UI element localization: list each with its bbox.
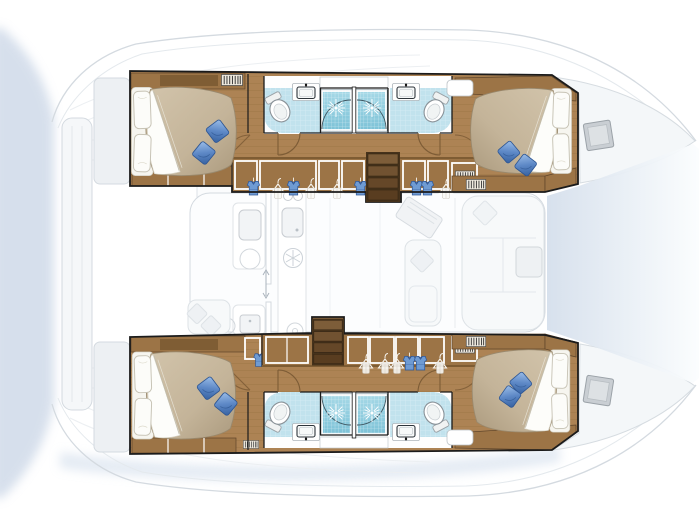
deck-hatch-bottom — [583, 375, 614, 406]
bottom-hull — [130, 317, 578, 454]
stove-icon — [282, 208, 303, 237]
vent-louver-icon — [221, 75, 242, 86]
companionway-stairs — [366, 152, 400, 202]
bottom-fwd-shower — [356, 394, 387, 435]
showerhead-icon — [363, 404, 381, 422]
sink — [393, 424, 420, 441]
saloon-side-table — [516, 247, 542, 277]
vent-louver-icon — [466, 179, 485, 189]
shower-lockers — [320, 437, 388, 448]
water-shadow-left — [0, 28, 54, 498]
top-bathrooms — [263, 76, 452, 134]
galley-sink2-icon — [240, 315, 260, 333]
shower-top-lockers — [320, 77, 388, 88]
top-aft-shower — [321, 90, 352, 131]
sink — [393, 84, 420, 101]
bottom-transom — [94, 342, 130, 452]
galley-divider-wall — [266, 190, 271, 284]
sink — [293, 84, 320, 101]
aft-platform-steps — [62, 118, 92, 410]
saloon — [186, 190, 545, 340]
showerhead-icon — [327, 404, 345, 422]
catamaran-floor-plan — [0, 0, 700, 525]
top-fwd-shower — [356, 90, 387, 131]
vent-louver-icon — [243, 441, 258, 449]
bottom-aft-shower — [321, 394, 352, 435]
vent-louver-icon — [466, 336, 485, 346]
top-transom — [94, 78, 130, 184]
fwd-settee — [186, 300, 230, 336]
top-hull — [130, 71, 578, 202]
companionway-stairs — [312, 318, 344, 365]
shower-divider-wall — [352, 392, 356, 438]
shower-divider-wall — [352, 87, 356, 133]
deck-hatch-top — [583, 120, 614, 151]
showerhead-icon — [327, 99, 345, 117]
showerhead-icon — [363, 99, 381, 117]
galley-sink-icon — [239, 210, 261, 240]
sink — [293, 424, 320, 441]
floor-plan-page — [0, 0, 700, 525]
double-bed — [132, 352, 235, 439]
bottom-bathrooms — [263, 392, 452, 448]
